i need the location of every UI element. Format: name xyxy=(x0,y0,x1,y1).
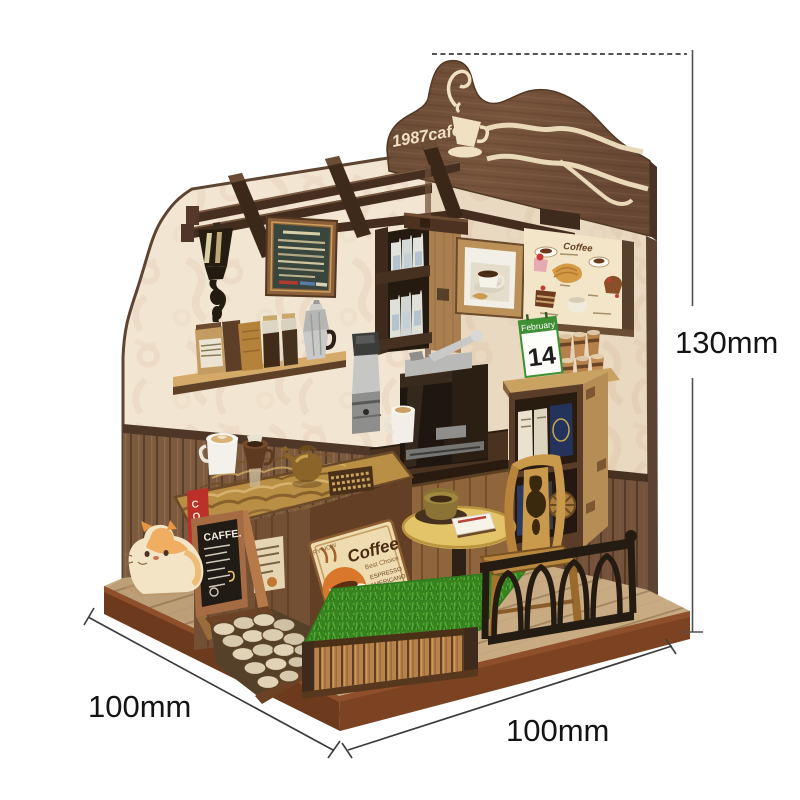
svg-text:100mm: 100mm xyxy=(88,689,191,724)
svg-text:100mm: 100mm xyxy=(506,713,609,748)
svg-text:14: 14 xyxy=(526,341,557,372)
svg-text:C: C xyxy=(191,499,200,511)
svg-text:130mm: 130mm xyxy=(675,325,778,360)
